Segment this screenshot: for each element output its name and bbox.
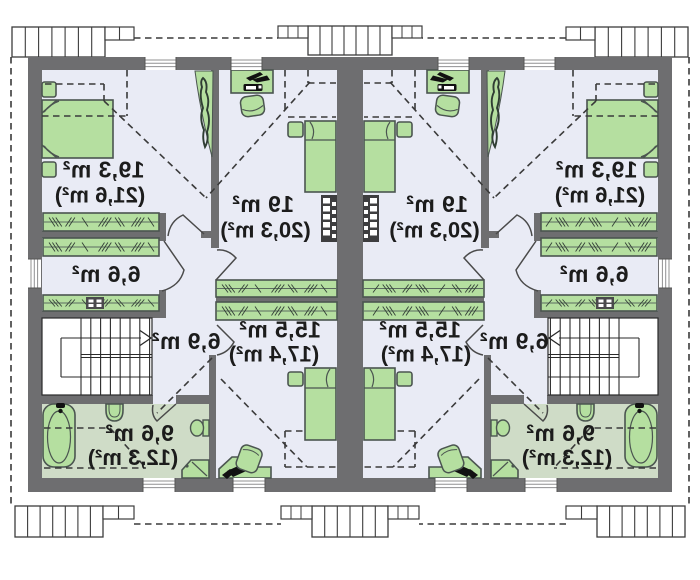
svg-text:6,6 m²: 6,6 m²	[72, 261, 141, 287]
svg-text:15,5 m²: 15,5 m²	[379, 317, 461, 343]
svg-text:6,9 m²: 6,9 m²	[152, 328, 221, 354]
svg-text:19 m²: 19 m²	[232, 191, 294, 217]
svg-text:15,5 m²: 15,5 m²	[239, 317, 321, 343]
svg-text:(20,3 m²): (20,3 m²)	[389, 218, 479, 243]
svg-text:6,9 m²: 6,9 m²	[480, 328, 549, 354]
svg-text:9,6 m²: 9,6 m²	[526, 420, 595, 446]
svg-text:9,6 m²: 9,6 m²	[105, 420, 174, 446]
svg-text:19 m²: 19 m²	[406, 191, 468, 217]
svg-text:19,3 m²: 19,3 m²	[62, 157, 144, 183]
svg-text:(17,4 m²): (17,4 m²)	[381, 342, 471, 367]
svg-text:(21,6 m²): (21,6 m²)	[555, 183, 645, 208]
svg-text:19,3 m²: 19,3 m²	[555, 157, 637, 183]
svg-text:(12,3 m²): (12,3 m²)	[88, 445, 178, 470]
svg-text:(17,4 m²): (17,4 m²)	[229, 342, 319, 367]
svg-text:(12,3 m²): (12,3 m²)	[522, 445, 612, 470]
svg-text:6,6 m²: 6,6 m²	[560, 261, 629, 287]
svg-text:(21,6 m²): (21,6 m²)	[55, 183, 145, 208]
svg-text:(20,3 m²): (20,3 m²)	[220, 218, 310, 243]
